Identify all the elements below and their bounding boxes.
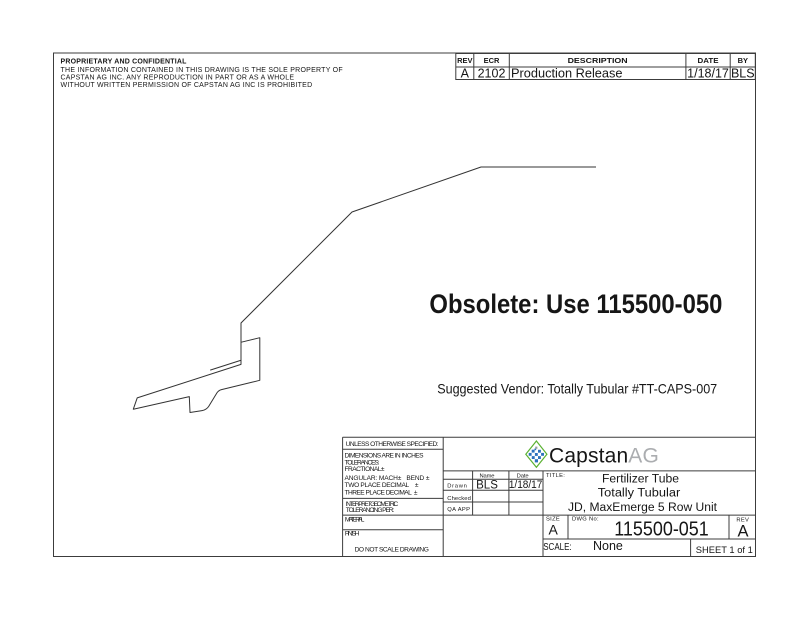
svg-text:DO NOT SCALE DRAWING: DO NOT SCALE DRAWING xyxy=(355,547,429,554)
svg-text:Obsolete: Use 115500-050: Obsolete: Use 115500-050 xyxy=(429,289,722,319)
svg-text:WITHOUT WRITTEN PERMISSION OF: WITHOUT WRITTEN PERMISSION OF CAPSTAN AG… xyxy=(61,82,313,89)
svg-text:REV: REV xyxy=(457,56,472,65)
svg-text:1/18/17: 1/18/17 xyxy=(509,479,543,491)
svg-text:Checked: Checked xyxy=(447,496,471,502)
svg-text:CAPSTAN AG INC. ANY REPRODUCTI: CAPSTAN AG INC. ANY REPRODUCTION IN PART… xyxy=(61,75,295,82)
svg-text:PROPRIETARY AND CONFIDENTIAL: PROPRIETARY AND CONFIDENTIAL xyxy=(61,59,188,66)
svg-text:TITLE:: TITLE: xyxy=(546,473,565,479)
svg-text:DATE: DATE xyxy=(698,56,719,65)
svg-text:2102: 2102 xyxy=(478,67,506,81)
svg-text:Suggested Vendor: Totally Tubu: Suggested Vendor: Totally Tubular #TT-CA… xyxy=(437,380,717,396)
svg-text:UNLESS OTHERWISE SPECIFIED:: UNLESS OTHERWISE SPECIFIED: xyxy=(346,441,439,448)
svg-text:THE INFORMATION CONTAINED IN T: THE INFORMATION CONTAINED IN THIS DRAWIN… xyxy=(61,67,343,74)
svg-text:BLS: BLS xyxy=(476,479,498,491)
svg-text:ANGULAR: MACH± BEND ±: ANGULAR: MACH± BEND ± xyxy=(345,475,430,482)
svg-text:TOLERANCING PER:: TOLERANCING PER: xyxy=(346,507,395,514)
svg-text:BLS: BLS xyxy=(731,67,755,81)
svg-text:DIMENSIONS ARE IN INCHES: DIMENSIONS ARE IN INCHES xyxy=(345,452,425,459)
svg-text:THREE PLACE DECIMAL ±: THREE PLACE DECIMAL ± xyxy=(345,489,418,496)
svg-text:A: A xyxy=(461,67,470,81)
svg-text:TWO PLACE DECIMAL ±: TWO PLACE DECIMAL ± xyxy=(345,482,419,489)
svg-text:ECR: ECR xyxy=(484,56,500,65)
svg-text:CapstanAG: CapstanAG xyxy=(549,445,659,468)
svg-text:BY: BY xyxy=(738,56,748,65)
svg-text:Drawn: Drawn xyxy=(447,483,467,489)
svg-text:SCALE:: SCALE: xyxy=(543,542,572,553)
svg-text:MATERIAL: MATERIAL xyxy=(345,517,365,524)
svg-text:FINISH: FINISH xyxy=(345,531,360,538)
svg-text:Fertilizer Tube: Fertilizer Tube xyxy=(602,473,679,485)
svg-text:JD, MaxEmerge 5 Row Unit: JD, MaxEmerge 5 Row Unit xyxy=(568,502,718,514)
svg-text:DWG No:: DWG No: xyxy=(572,517,599,523)
svg-text:A: A xyxy=(737,523,748,541)
svg-text:QA APP: QA APP xyxy=(447,507,470,513)
svg-text:115500-051: 115500-051 xyxy=(614,517,709,540)
svg-text:SHEET 1 of 1: SHEET 1 of 1 xyxy=(696,545,753,556)
svg-text:Production Release: Production Release xyxy=(511,67,623,81)
svg-text:FRACTIONAL±: FRACTIONAL± xyxy=(345,466,385,473)
svg-text:1/18/17: 1/18/17 xyxy=(687,67,729,81)
svg-text:A: A xyxy=(549,522,559,538)
svg-text:Totally Tubular: Totally Tubular xyxy=(598,487,681,499)
svg-text:DESCRIPTION: DESCRIPTION xyxy=(568,56,628,65)
svg-text:None: None xyxy=(593,539,623,553)
